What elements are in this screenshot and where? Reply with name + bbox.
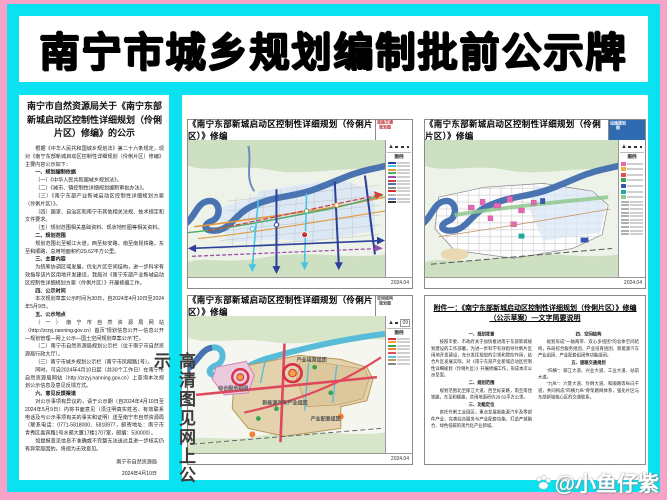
legend-item (388, 363, 410, 365)
structure-legend-title: 图例 (387, 330, 411, 336)
section-heading: 四、空间结构 (538, 331, 639, 338)
attachment-columns: 一、规划背景按照市委、市政府关于加快推进南宁东部新城规划建设的工作部署，为进一步… (431, 329, 639, 457)
credit-text: @小鱼仔紫 (555, 468, 659, 498)
legend-item (621, 233, 643, 235)
legend-item (621, 219, 643, 221)
paragraph: （五）规划范围相关基础资料、现状地形图等相关资料。 (25, 224, 164, 232)
structure-map-legend: ▲ 09 图例 (385, 316, 412, 454)
legend-item (388, 345, 410, 347)
legend-item (388, 201, 410, 203)
attachment-title: 附件一：《南宁东部新城启动区控制性详细规划（伶俐片区）》修编（公示草案）—文字简… (433, 304, 637, 324)
legend-item (621, 204, 643, 206)
legend-item (388, 348, 410, 350)
notice-body: 根据《中华人民共和国城乡规划法》第二十六条规定，现对《南宁东部新城启动区控制性详… (25, 145, 164, 453)
legend-item (388, 176, 410, 178)
paragraph: （四）国家、自治区和南宁市其他相关法规、技术规定和文件要求。 (25, 208, 164, 224)
scale-bar (395, 322, 399, 324)
paragraph: 本次规划草案公示时间为30日，自2024年4月10日至2024年5月9日。 (25, 295, 164, 311)
paragraph: 对公示事项有异议的，请于公示期（自2024年4月10日至2024年5月9日）内将… (25, 398, 164, 438)
facility-map-legend: ▲ 图例 (618, 140, 645, 278)
attachment-col-1: 一、规划背景按照市委、市政府关于加快推进南宁东部新城规划建设的工作部署，为进一步… (431, 329, 532, 457)
road-map-date: 2024.04 (188, 277, 412, 288)
paragraph: 根据《中华人民共和国城乡规划法》第二十六条规定，现对《南宁东部新城启动区控制性详… (25, 145, 164, 169)
facility-map-svg (425, 140, 618, 278)
facility-legend-title: 图例 (620, 154, 644, 160)
panel-facility-plan: 《南宁东部新城启动区控制性详细规划（伶俐片区）》修编 公共服务设施规划图 (424, 119, 646, 289)
road-legend-items (387, 162, 411, 204)
panel-facility-tag: 公共服务设施规划图 (608, 120, 645, 140)
north-arrow-icon: ▲ (388, 144, 394, 150)
structure-label-incubate: 产业培育组团 (297, 356, 327, 363)
paragraph: （一）《中华人民共和国城乡规划法》。 (25, 176, 164, 184)
panel-facility-body: ▲ 图例 (425, 140, 645, 278)
section-heading: 三、主要内容 (25, 255, 164, 263)
cyan-frame: 南宁市城乡规划编制批前公示牌 南宁市自然资源局关于《南宁东部新城启动区控制性详细… (7, 4, 660, 492)
paragraph: “九纵”：六景大道、伶俐大道、和顺路等纵向干道，共同构成“四横九纵”骨架路网体系… (538, 380, 639, 400)
section-heading: 一、规划编制依据 (25, 168, 164, 176)
north-arrow-icon: ▲ (388, 320, 394, 326)
structure-map: 综合服务组团 产业培育组团 新能源汽车产业组团 产业配套组团 (188, 316, 385, 454)
scale-bar (395, 146, 409, 148)
structure-map-date: 2024.04 (188, 453, 412, 464)
section-heading: 六、意见反馈渠道 (25, 390, 164, 398)
legend-item (621, 212, 643, 214)
credit-watermark: @小鱼仔紫 (533, 468, 659, 498)
legend-item (621, 208, 643, 210)
legend-item (621, 222, 643, 224)
panel-road-plan: 《南宁东部新城启动区控制性详细规划（伶俐片区）》修编 道路交通规划图 (187, 119, 413, 289)
notice-column: 南宁市自然资源局关于《南宁东部新城启动区控制性详细规划（伶俐片区）修编》的公示 … (19, 95, 169, 480)
section-heading: 五、道路交通规划 (538, 359, 639, 366)
panel-road-title: 《南宁东部新城启动区控制性详细规划（伶俐片区）》修编 (188, 120, 375, 140)
scale-bar (628, 146, 642, 148)
paragraph: 依托伶俐工业园区，重点发展新能源汽车及零部件产业，完善综合服务与产业配套功能，打… (431, 409, 532, 429)
legend-item (388, 187, 410, 189)
legend-item (388, 359, 410, 361)
legend-item (388, 172, 410, 174)
legend-item (621, 162, 643, 166)
paragraph: （二）《城市、镇控制性详细规划编制审批办法》。 (25, 184, 164, 192)
structure-map-svg: 综合服务组团 产业培育组团 新能源汽车产业组团 产业配套组团 (188, 316, 385, 454)
road-north-row: ▲ (387, 141, 411, 153)
legend-item (388, 169, 410, 171)
legend-item (621, 195, 643, 199)
sheet-number: 09 (400, 319, 410, 327)
panel-structure-titlebar: 《南宁东部新城启动区控制性详细规划（伶俐片区）》修编 空间结构规划图 (188, 296, 412, 317)
legend-item (388, 180, 410, 182)
structure-legend-items (387, 338, 411, 365)
section-heading: 三、功能定位 (431, 401, 532, 408)
paw-icon (533, 473, 553, 493)
structure-north-row: ▲ 09 (387, 317, 411, 329)
panel-structure-tag: 空间结构规划图 (375, 296, 412, 316)
legend-item (621, 201, 643, 203)
legend-item (388, 183, 410, 185)
paragraph: 如提报意见信息不准确或不完整无法送达且进一步核实仍有异常原因的，将视为无效意见。 (25, 437, 164, 453)
structure-label-service: 综合服务组团 (218, 385, 248, 392)
notice-signature: 南宁市自然资源局 (25, 457, 164, 465)
section-heading: 五、公示地点 (25, 311, 164, 319)
legend-item (621, 215, 643, 217)
panels-area: 《南宁东部新城启动区控制性详细规划（伶俐片区）》修编 道路交通规划图 (182, 95, 648, 480)
panel-facility-title: 《南宁东部新城启动区控制性详细规划（伶俐片区）》修编 (425, 120, 608, 140)
legend-item (388, 356, 410, 358)
north-arrow-icon: ▲ (621, 144, 627, 150)
facility-map (425, 140, 618, 278)
notice-body-clip: 根据《中华人民共和国城乡规划法》第二十六条规定，现对《南宁东部新城启动区控制性详… (25, 145, 164, 475)
paragraph: （一）南宁市自然资源局网站（http://zrzyj.nanning.gov.c… (25, 318, 164, 342)
legend-item (621, 167, 643, 171)
road-map-svg (188, 140, 385, 278)
paragraph: 规划形成“一轴两带、双心多组团”的总体空间结构，布局综合服务组团、产业培育组团、… (538, 338, 639, 358)
road-map-legend: ▲ 图例 (385, 140, 412, 278)
panel-facility-titlebar: 《南宁东部新城启动区控制性详细规划（伶俐片区）》修编 公共服务设施规划图 (425, 120, 645, 141)
road-legend-title: 图例 (387, 154, 411, 160)
attachment-col-2: 四、空间结构规划形成“一轴两带、双心多组团”的总体空间结构，布局综合服务组团、产… (538, 329, 639, 457)
paragraph: “四横”：郁江大道、兴业大道、工业大道、站前大道。 (538, 367, 639, 380)
legend-item (388, 194, 410, 196)
facility-north-row: ▲ (620, 141, 644, 153)
panel-structure-body: 综合服务组团 产业培育组团 新能源汽车产业组团 产业配套组团 ▲ 09 (188, 316, 412, 454)
panel-road-tag: 道路交通规划图 (375, 120, 412, 140)
paragraph: 同时，可自2024年4月10日起（共30个工作日）在南宁市自然资源局网站（htt… (25, 366, 164, 390)
panel-road-titlebar: 《南宁东部新城启动区控制性详细规划（伶俐片区）》修编 道路交通规划图 (188, 120, 412, 141)
paragraph: （三）南宁市城乡规划公示栏（南宁市凤翔路1号）。 (25, 358, 164, 366)
panel-attachment: 附件一：《南宁东部新城启动区控制性详细规划（伶俐片区）》修编（公示草案）—文字简… (424, 295, 646, 465)
horizontal-divider (7, 82, 660, 95)
page-title: 南宁市城乡规划编制批前公示牌 (40, 20, 628, 78)
legend-item (388, 352, 410, 354)
legend-item (621, 190, 643, 194)
vertical-watermark: 高清图见网上公示 (148, 352, 198, 492)
legend-item (388, 341, 410, 343)
road-map (188, 140, 385, 278)
banner: 南宁市城乡规划编制批前公示牌 (19, 18, 648, 80)
notice-board: 南宁市城乡规划编制批前公示牌 南宁市自然资源局关于《南宁东部新城启动区控制性详细… (0, 0, 667, 500)
legend-item (388, 338, 410, 340)
paragraph: 规划范围北至郁江大道，西至标安路，南至南昆铁路，东至和顺路，总用地面积约29.6… (431, 387, 532, 400)
legend-item (621, 230, 643, 232)
paragraph: 按照市委、市政府关于加快推进南宁东部新城规划建设的工作部署，为进一步科学有效指导… (431, 338, 532, 378)
paragraph: （三）《南宁东部产业新城启动区控制性详细规划方案（伶俐片区）》。 (25, 192, 164, 208)
section-heading: 一、规划背景 (431, 331, 532, 338)
section-heading: 四、公示时间 (25, 287, 164, 295)
legend-item (388, 198, 410, 200)
paragraph: 为统筹协调区域发展，优化片区空间结构，进一步科学有效指导该片区用地开发建设，我局… (25, 263, 164, 287)
section-heading: 二、规划范围 (431, 379, 532, 386)
facility-map-date: 2024.04 (425, 277, 645, 288)
paragraph: （二）南宁市自然资源局规划公示栏（位于南宁市自然资源局行政大厅）。 (25, 342, 164, 358)
panel-structure-plan: 《南宁东部新城启动区控制性详细规划（伶俐片区）》修编 空间结构规划图 (187, 295, 413, 465)
section-heading: 二、规划范围 (25, 231, 164, 239)
notice-date: 2024年4月10日 (25, 468, 164, 474)
legend-item (621, 173, 643, 177)
structure-label-support: 产业配套组团 (311, 416, 341, 423)
panel-road-body: ▲ 图例 (188, 140, 412, 278)
facility-legend-lines (620, 201, 644, 235)
structure-label-nev: 新能源汽车产业组团 (262, 400, 307, 407)
legend-item (621, 184, 643, 188)
legend-item (621, 226, 643, 228)
board-inner: 南宁市城乡规划编制批前公示牌 南宁市自然资源局关于《南宁东部新城启动区控制性详细… (19, 16, 648, 480)
legend-item (388, 165, 410, 167)
legend-item (388, 162, 410, 164)
facility-legend-squares (620, 162, 644, 200)
notice-title: 南宁市自然资源局关于《南宁东部新城启动区控制性详细规划（伶俐片区）修编》的公示 (25, 100, 164, 141)
panel-structure-title: 《南宁东部新城启动区控制性详细规划（伶俐片区）》修编 (188, 296, 375, 316)
legend-item (388, 190, 410, 192)
paragraph: 规划范围北至郁江大道，西至标安路，南至南昆铁路，东至和顺路，总用地面积约29.6… (25, 239, 164, 255)
legend-item (621, 178, 643, 182)
